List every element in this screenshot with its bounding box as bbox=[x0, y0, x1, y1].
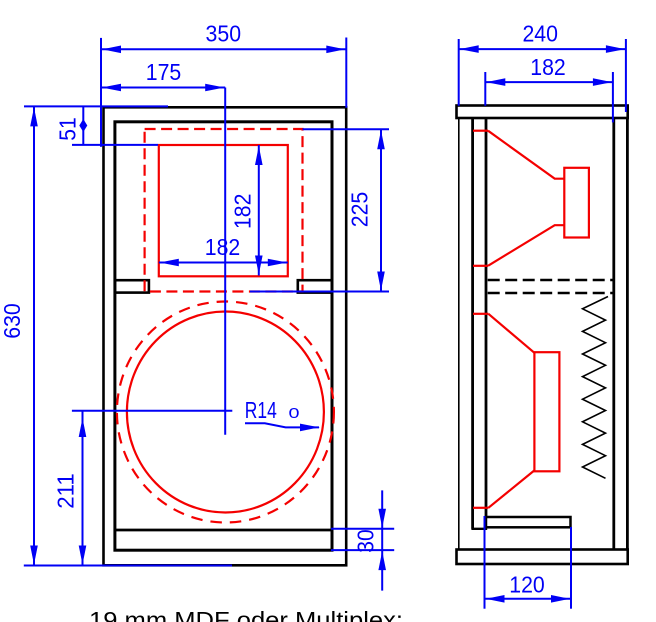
svg-text:182: 182 bbox=[530, 54, 566, 80]
svg-text:350: 350 bbox=[206, 21, 242, 47]
svg-text:175: 175 bbox=[146, 59, 182, 85]
svg-text:30: 30 bbox=[353, 529, 379, 553]
svg-text:R14: R14 bbox=[245, 397, 277, 423]
svg-text:630: 630 bbox=[0, 303, 25, 339]
svg-text:120: 120 bbox=[509, 572, 545, 598]
svg-text:51: 51 bbox=[55, 117, 81, 141]
svg-text:211: 211 bbox=[53, 473, 79, 509]
svg-text:182: 182 bbox=[205, 234, 241, 260]
svg-text:240: 240 bbox=[522, 21, 558, 47]
svg-text:225: 225 bbox=[347, 192, 373, 228]
svg-text:19 mm MDF oder Multiplex:: 19 mm MDF oder Multiplex: bbox=[89, 607, 403, 622]
svg-text:182: 182 bbox=[230, 194, 256, 230]
svg-text:0: 0 bbox=[289, 405, 300, 422]
